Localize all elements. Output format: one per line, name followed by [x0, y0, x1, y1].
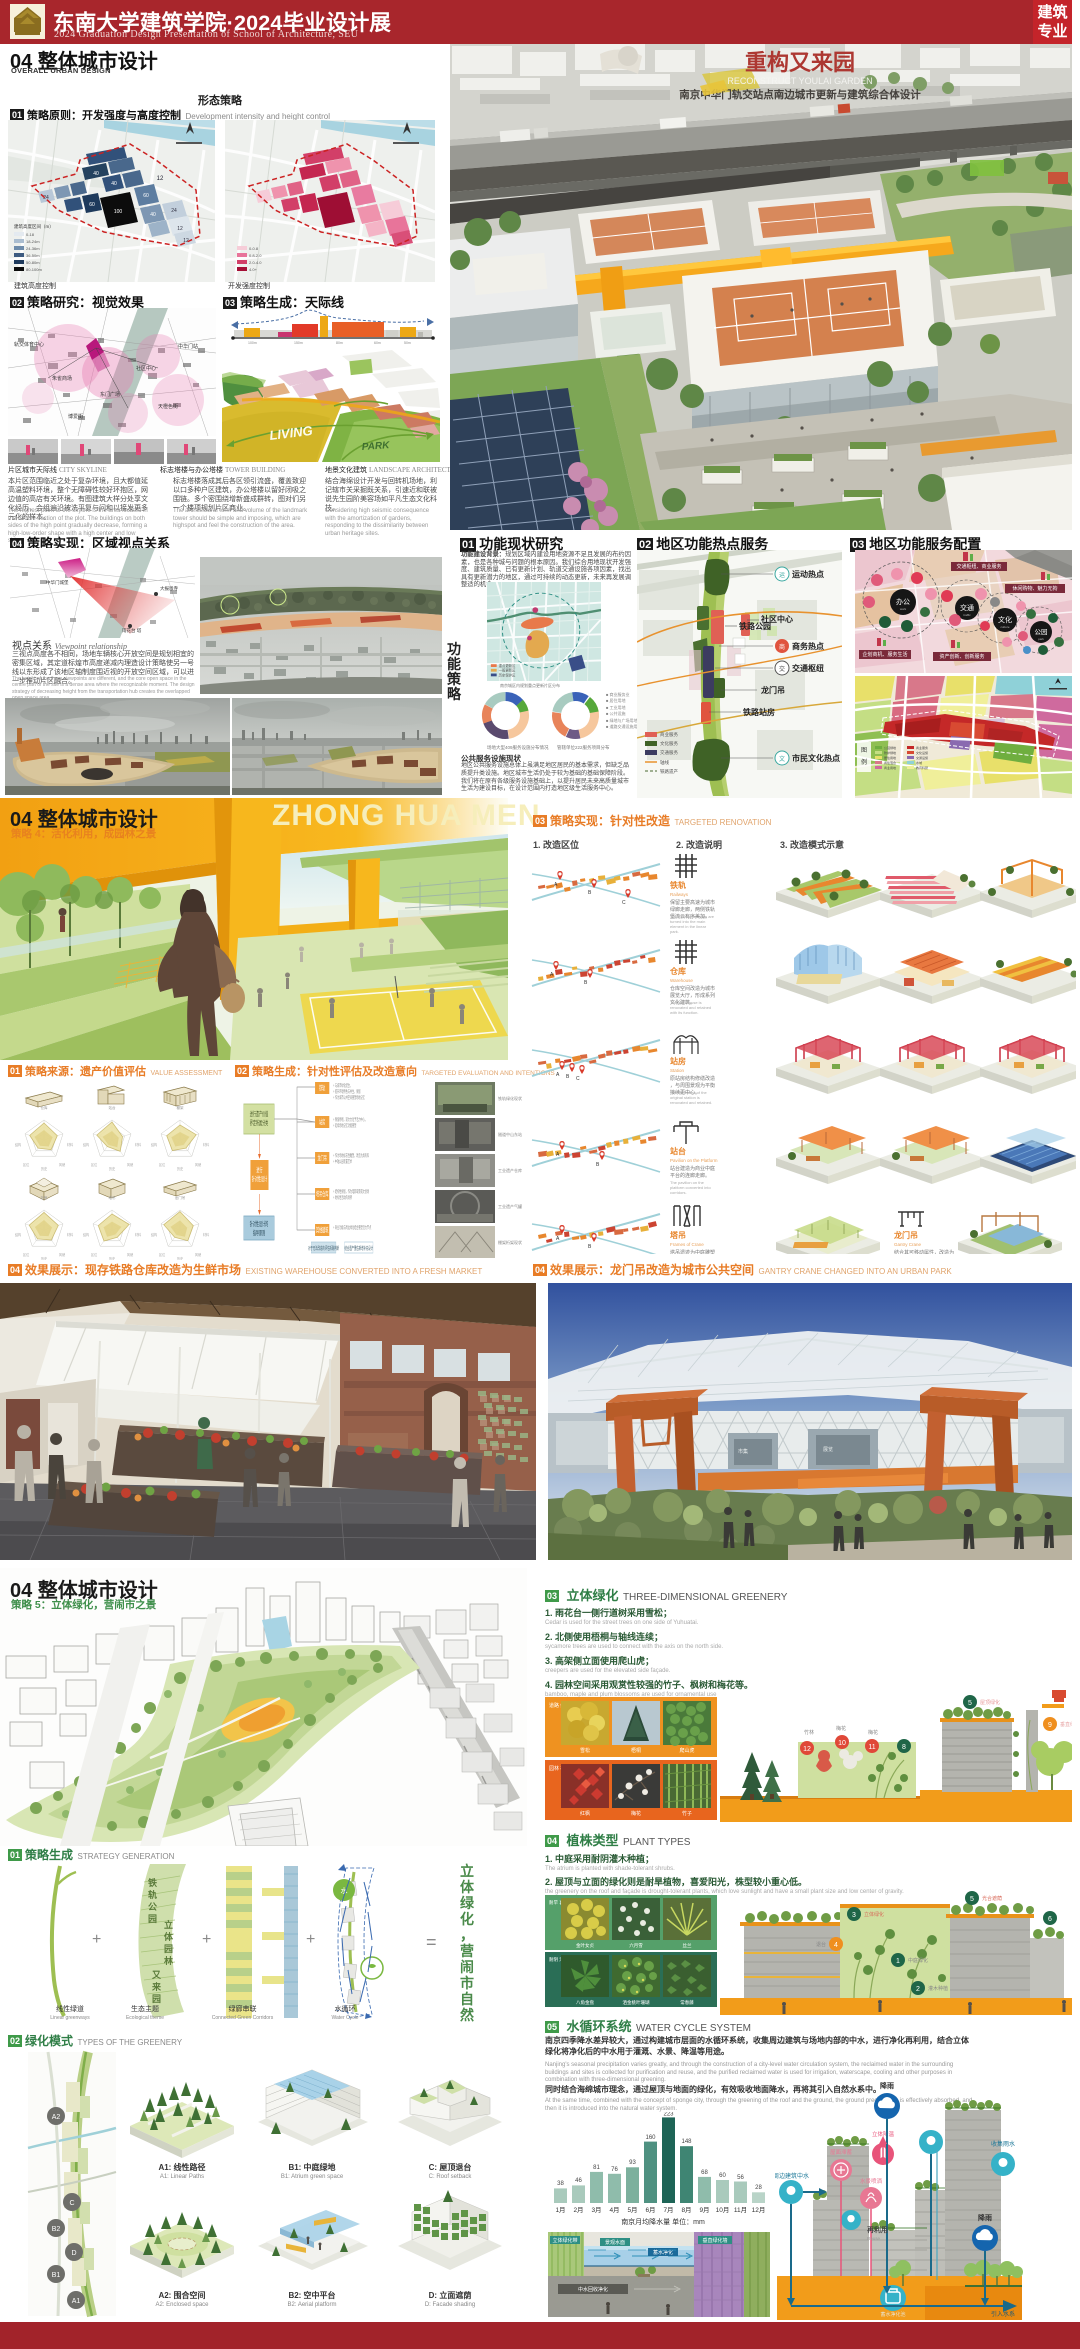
svg-text:大报恩寺: 大报恩寺 [160, 585, 178, 592]
svg-text:历史: 历史 [177, 1166, 184, 1171]
svg-text:corridors.: corridors. [670, 1190, 687, 1195]
svg-text:18-24m: 18-24m [26, 239, 40, 244]
svg-text:公: 公 [148, 1902, 157, 1912]
svg-text:梅花: 梅花 [631, 1810, 641, 1817]
svg-text:梅花: 梅花 [836, 1725, 846, 1732]
svg-text:公园: 公园 [1035, 628, 1048, 636]
svg-text:材料: 材料 [135, 1142, 142, 1147]
svg-text:A1: 线性路径: A1: 线性路径 [158, 2162, 205, 2172]
svg-text:+ 与城市绿化结合，: + 与城市绿化结合， [333, 1082, 352, 1088]
svg-text:铁轨: 铁轨 [319, 1084, 325, 1093]
svg-text:40: 40 [150, 212, 156, 218]
svg-text:水域: 水域 [916, 760, 922, 765]
svg-text:爬山虎: 爬山虎 [679, 1747, 694, 1754]
svg-text:交通枢纽、商业服务: 交通枢纽、商业服务 [956, 563, 1001, 570]
svg-text:工业遗产气罐: 工业遗产气罐 [498, 1203, 522, 1209]
svg-text:0-18: 0-18 [26, 232, 35, 237]
svg-text:交通枢纽: 交通枢纽 [792, 663, 824, 673]
svg-text:文化: 文化 [998, 615, 1012, 624]
svg-text:历史: 历史 [109, 1166, 116, 1171]
svg-text:风貌: 风貌 [59, 1252, 66, 1257]
svg-text:RECONSTRUCT YOULAI GARDEN: RECONSTRUCT YOULAI GARDEN [727, 76, 872, 86]
svg-text:市民文化热点: 市民文化热点 [792, 753, 840, 763]
svg-text:运: 运 [779, 571, 785, 579]
svg-text:2.0-4.0: 2.0-4.0 [249, 260, 262, 265]
svg-text:竹子: 竹子 [682, 1810, 692, 1817]
svg-text:教育科研: 教育科研 [916, 765, 928, 770]
svg-text:针对性设计: 针对性设计 [252, 1175, 267, 1184]
svg-text:立: 立 [460, 1863, 474, 1879]
svg-text:8月: 8月 [681, 2206, 691, 2214]
svg-text:A1: A1 [72, 2298, 81, 2305]
svg-text:60: 60 [143, 193, 149, 199]
svg-text:80-100m: 80-100m [26, 267, 42, 272]
svg-text:居住用地: 居住用地 [884, 755, 896, 760]
svg-text:灌木种植: 灌木种植 [928, 1985, 948, 1992]
svg-text:+ 中轴公园装置艺术: + 中轴公园装置艺术 [333, 1158, 352, 1164]
svg-text:平台的连廊走廊。: 平台的连廊走廊。 [670, 1172, 710, 1179]
svg-text:运动热点: 运动热点 [792, 569, 824, 579]
svg-text:图: 图 [861, 747, 867, 754]
svg-text:立: 立 [164, 1919, 173, 1930]
svg-text:B: B [584, 980, 588, 986]
svg-text:资产创新、创新服务: 资产创新、创新服务 [939, 653, 984, 660]
svg-text:223: 223 [663, 2112, 674, 2118]
svg-text:=: = [426, 1932, 437, 1952]
svg-text:B: B [588, 890, 592, 896]
svg-text:Gantry Crane: Gantry Crane [894, 1242, 922, 1247]
svg-text:垂直绿化: 垂直绿化 [1060, 1721, 1072, 1728]
svg-text:站房: 站房 [41, 1195, 48, 1200]
svg-text:社区中心: 社区中心 [136, 365, 156, 372]
svg-text:160: 160 [645, 2135, 656, 2141]
svg-text:天橙色街: 天橙色街 [158, 403, 178, 410]
svg-text:B: B [588, 1244, 592, 1250]
svg-text:风貌: 风貌 [195, 1162, 202, 1167]
svg-text:区位: 区位 [91, 1252, 98, 1257]
svg-text:轨: 轨 [148, 1889, 157, 1900]
svg-text:立体绿化带: 立体绿化带 [552, 2237, 577, 2244]
svg-text:+: + [202, 1931, 211, 1948]
svg-text:6月: 6月 [645, 2206, 655, 2214]
svg-text:屋顶绿化: 屋顶绿化 [980, 1699, 1000, 1706]
svg-text:对于无法改造的评估拆除判断: 对于无法改造的评估拆除判断 [308, 1245, 339, 1251]
svg-text:梧桐: 梧桐 [631, 1747, 641, 1754]
svg-text:结构: 结构 [151, 1142, 157, 1147]
svg-text:历史: 历史 [109, 1256, 116, 1260]
svg-text:traffic: traffic [963, 613, 971, 617]
svg-text:例: 例 [861, 758, 867, 766]
svg-text:park.: park. [670, 929, 679, 934]
svg-text:3月: 3月 [591, 2206, 601, 2214]
svg-text:建筑高度区间（m）: 建筑高度区间（m） [14, 223, 54, 230]
svg-text:结构: 结构 [15, 1142, 21, 1147]
svg-text:1: 1 [896, 1958, 900, 1965]
svg-text:梅花: 梅花 [868, 1729, 878, 1736]
svg-text:B1: Atrium green space: B1: Atrium green space [281, 2174, 344, 2180]
svg-text:5: 5 [970, 1896, 974, 1903]
svg-text:+ 保留修缮，适文文化予活力中心，: + 保留修缮，适文文化予活力中心， [333, 1116, 367, 1122]
svg-text:轨交体育中心: 轨交体育中心 [14, 341, 44, 348]
svg-text:历史保护区: 历史保护区 [499, 672, 517, 677]
svg-text:+ 作为城市公共空间重塑场地记忆: + 作为城市公共空间重塑场地记忆 [333, 1094, 365, 1100]
svg-text:体: 体 [164, 1931, 174, 1942]
svg-text:材料: 材料 [203, 1232, 210, 1237]
svg-text:工业遗产仓库: 工业遗产仓库 [498, 1167, 522, 1173]
svg-text:站台: 站台 [109, 1105, 116, 1110]
svg-text:结合其可移动属性，改造为: 结合其可移动属性，改造为 [894, 1249, 954, 1254]
svg-text:龙门吊: 龙门吊 [893, 1230, 918, 1240]
svg-text:结构: 结构 [83, 1232, 89, 1237]
svg-text:+: + [306, 1931, 315, 1948]
svg-text:轴线: 轴线 [660, 759, 669, 766]
svg-text:垂直绿化墙: 垂直绿化墙 [702, 2237, 727, 2244]
svg-text:景观水面: 景观水面 [605, 2239, 625, 2246]
svg-text:PARK: PARK [361, 440, 390, 453]
svg-text:文化服务: 文化服务 [660, 740, 678, 747]
svg-text:38: 38 [557, 2181, 564, 2187]
svg-text:历史: 历史 [41, 1256, 48, 1260]
svg-text:展览: 展览 [823, 1446, 833, 1453]
svg-text:40: 40 [93, 171, 99, 177]
svg-text:11: 11 [868, 1744, 875, 1751]
svg-text:B2: Aerial platform: B2: Aerial platform [287, 2302, 336, 2308]
svg-text:洒金桃叶珊瑚: 洒金桃叶珊瑚 [623, 1999, 650, 2006]
svg-text:塔吊仓库: 塔吊仓库 [316, 1190, 328, 1199]
svg-text:商住混合: 商住混合 [884, 760, 896, 765]
svg-text:一般更新区: 一般更新区 [499, 668, 517, 673]
svg-text:10: 10 [838, 1740, 846, 1747]
svg-text:50-80m: 50-80m [26, 260, 40, 265]
svg-text:+ 提升环境特色与共生，保留: + 提升环境特色与共生，保留 [333, 1088, 361, 1094]
svg-text:+ 结构性保留，作为电影取景或文创场: + 结构性保留，作为电影取景或文创场 [333, 1188, 369, 1194]
svg-text:区位: 区位 [23, 1252, 30, 1257]
svg-text:，: ， [460, 1927, 474, 1943]
svg-text:A1: Linear Paths: A1: Linear Paths [160, 2174, 204, 2180]
svg-text:A2: A2 [52, 2114, 61, 2121]
svg-text:风貌: 风貌 [195, 1252, 202, 1257]
svg-text:屋面滞蓄: 屋面滞蓄 [830, 2148, 853, 2156]
svg-text:商务热点: 商务热点 [792, 641, 824, 651]
svg-text:C: C [69, 2200, 74, 2207]
svg-text:朱雀商场: 朱雀商场 [52, 375, 72, 382]
svg-text:园: 园 [152, 1994, 161, 2004]
svg-text:其他建筑: 其他建筑 [316, 1226, 328, 1235]
svg-text:铁轨绿化现状: 铁轨绿化现状 [498, 1095, 522, 1101]
svg-text:针对性设计的: 针对性设计的 [250, 1220, 268, 1229]
svg-text:，与周围景观为平衡: ，与周围景观为平衡 [670, 1082, 715, 1089]
svg-text:仓库: 仓库 [669, 966, 686, 976]
svg-text:中华门站: 中华门站 [178, 343, 198, 350]
svg-text:历史: 历史 [177, 1256, 184, 1260]
svg-text:1月: 1月 [555, 2206, 565, 2214]
svg-text:9: 9 [1048, 1722, 1052, 1729]
svg-text:50m: 50m [404, 341, 411, 345]
svg-text:指导原则: 指导原则 [253, 1229, 265, 1238]
svg-text:28: 28 [755, 2185, 762, 2191]
svg-text:营: 营 [460, 1943, 474, 1959]
svg-text:收集雨水: 收集雨水 [991, 2140, 1015, 2148]
svg-text:竹林: 竹林 [804, 1729, 814, 1736]
svg-text:40: 40 [111, 181, 117, 187]
svg-text:100m: 100m [248, 341, 257, 345]
svg-text:+ 商业功能与周边绿化结合重塑活力节点: + 商业功能与周边绿化结合重塑活力节点 [333, 1224, 371, 1230]
svg-text:市集: 市集 [738, 1448, 748, 1455]
svg-text:4.0+: 4.0+ [249, 267, 258, 272]
svg-text:100: 100 [114, 209, 123, 215]
svg-text:体: 体 [460, 1879, 475, 1895]
svg-text:46: 46 [575, 2178, 582, 2184]
svg-text:B: B [566, 1074, 570, 1080]
svg-text:防护绿地: 防护绿地 [884, 750, 896, 755]
svg-text:进行: 进行 [256, 1166, 262, 1175]
svg-text:绿: 绿 [460, 1895, 475, 1911]
svg-text:结构: 结构 [15, 1232, 21, 1237]
svg-text:区位: 区位 [159, 1162, 166, 1167]
svg-text:A: A [556, 1072, 560, 1078]
svg-text:11月: 11月 [734, 2206, 747, 2214]
svg-text:雪松: 雪松 [580, 1747, 590, 1754]
svg-text:结合遗产重估新增补充设计: 结合遗产重估新增补充设计 [345, 1245, 373, 1251]
svg-text:重构又来园: 重构又来园 [745, 50, 855, 75]
svg-text:办公: 办公 [896, 597, 910, 606]
svg-text:风貌: 风貌 [59, 1162, 66, 1167]
svg-text:60: 60 [89, 202, 95, 208]
svg-text:金叶女贞: 金叶女贞 [576, 1942, 594, 1949]
svg-text:博爱街: 博爱街 [68, 413, 83, 420]
svg-text:中华门城堡: 中华门城堡 [46, 579, 69, 586]
svg-text:林: 林 [164, 1955, 174, 1966]
svg-text:C: C [622, 900, 626, 906]
svg-text:60m: 60m [374, 341, 381, 345]
svg-text:交通设施: 交通设施 [916, 755, 928, 760]
svg-text:园: 园 [148, 1914, 157, 1924]
svg-text:+ 延续场地记忆功能重塑: + 延续场地记忆功能重塑 [333, 1122, 356, 1128]
svg-text:76: 76 [611, 2167, 618, 2173]
svg-text:park: park [1038, 637, 1044, 641]
svg-text:+ 地标性活动的场所: + 地标性活动的场所 [333, 1194, 352, 1200]
svg-text:材料: 材料 [203, 1142, 210, 1147]
svg-text:然: 然 [460, 2007, 474, 2022]
svg-text:93: 93 [629, 2160, 636, 2166]
svg-text:风貌: 风貌 [127, 1162, 134, 1167]
svg-text:降雨: 降雨 [978, 2213, 992, 2222]
svg-text:Pavilion on the Platform: Pavilion on the Platform [670, 1158, 718, 1163]
svg-text:Station: Station [670, 1068, 685, 1073]
svg-text:龙门吊: 龙门吊 [318, 1154, 327, 1163]
svg-text:6: 6 [1048, 1916, 1052, 1923]
svg-text:材料: 材料 [135, 1232, 142, 1237]
svg-text:铁轨: 铁轨 [670, 880, 686, 890]
svg-text:保留主要高速为城市: 保留主要高速为城市 [670, 899, 715, 906]
svg-text:又: 又 [151, 1970, 162, 1980]
svg-text:界定所属分类: 界定所属分类 [250, 1119, 268, 1128]
svg-text:Frames of Crane: Frames of Crane [670, 1242, 704, 1247]
svg-text:结构: 结构 [151, 1232, 157, 1237]
svg-text:来: 来 [151, 1981, 162, 1992]
svg-text:D: 立面遮荫: D: 立面遮荫 [429, 2290, 472, 2300]
svg-text:进行遗产价值: 进行遗产价值 [250, 1110, 268, 1119]
svg-text:D: D [71, 2250, 76, 2257]
svg-text:仓库空间改造为城市: 仓库空间改造为城市 [670, 985, 715, 992]
svg-text:商: 商 [779, 643, 785, 651]
svg-text:5月: 5月 [627, 2206, 637, 2214]
svg-text:站台建造为商业中庭: 站台建造为商业中庭 [670, 1165, 715, 1172]
svg-text:企划商机、服务生活: 企划商机、服务生活 [862, 651, 907, 658]
svg-text:周边建筑中水: 周边建筑中水 [775, 2172, 809, 2180]
svg-text:24: 24 [171, 208, 177, 214]
svg-text:C: Roof setback: C: Roof setback [429, 2174, 473, 2180]
svg-text:A2: 围合空间: A2: 围合空间 [158, 2290, 205, 2300]
svg-text:闹: 闹 [460, 1959, 474, 1975]
svg-text:化: 化 [460, 1911, 474, 1927]
svg-text:12月: 12月 [752, 2206, 766, 2214]
svg-text:蓄水净化池: 蓄水净化池 [880, 2311, 905, 2318]
svg-text:商业服务: 商业服务 [916, 745, 928, 750]
svg-text:塔吊: 塔吊 [109, 1195, 116, 1200]
svg-text:Reuse: Reuse [867, 2236, 881, 2241]
svg-text:12: 12 [803, 1746, 811, 1753]
svg-text:仓库: 仓库 [41, 1105, 48, 1110]
svg-text:站房: 站房 [670, 1056, 686, 1066]
svg-text:B: B [596, 1162, 600, 1168]
svg-text:历史: 历史 [41, 1166, 48, 1171]
svg-text:退台: 退台 [816, 1941, 826, 1948]
svg-text:丝兰: 丝兰 [683, 1942, 692, 1948]
svg-text:150m: 150m [294, 341, 303, 345]
svg-text:再利用: 再利用 [867, 2225, 888, 2234]
svg-text:公园绿地: 公园绿地 [884, 745, 896, 750]
svg-text:culture: culture [1000, 625, 1009, 629]
svg-text:站台: 站台 [670, 1146, 686, 1156]
svg-text:D: Facade shading: D: Facade shading [425, 2302, 475, 2308]
svg-text:棚架: 棚架 [177, 1105, 184, 1110]
svg-text:重点更新区: 重点更新区 [499, 663, 517, 668]
svg-text:C: C [576, 1076, 580, 1082]
svg-text:结构: 结构 [83, 1142, 89, 1147]
svg-text:81: 81 [593, 2165, 600, 2171]
svg-text:B2: B2 [52, 2226, 61, 2233]
svg-text:隧道中山东站: 隧道中山东站 [498, 1131, 522, 1137]
svg-text:36-50m: 36-50m [26, 253, 40, 258]
svg-text:南京月均降水量 单位：mm: 南京月均降水量 单位：mm [621, 2217, 705, 2226]
svg-text:with its function.: with its function. [670, 1010, 698, 1015]
svg-text:六月雪: 六月雪 [629, 1942, 643, 1949]
svg-text:56: 56 [737, 2175, 744, 2181]
svg-text:Warehouse: Warehouse [670, 978, 693, 983]
svg-text:光合遮荫: 光合遮荫 [982, 1895, 1002, 1902]
svg-text:龙门吊: 龙门吊 [175, 1195, 186, 1200]
svg-text:原站房结构修缮改造: 原站房结构修缮改造 [670, 1075, 715, 1082]
svg-text:休闲购物、魅力无拘: 休闲购物、魅力无拘 [1012, 585, 1057, 592]
svg-text:自: 自 [460, 1991, 474, 2007]
svg-text:C: 屋顶退台: C: 屋顶退台 [429, 2162, 472, 2172]
svg-text:商业服务: 商业服务 [660, 731, 678, 738]
svg-text:中庭绿化: 中庭绿化 [908, 1957, 928, 1964]
svg-text:绿廊走廊，两侧铁轨: 绿廊走廊，两侧铁轨 [670, 906, 715, 913]
svg-text:区位: 区位 [91, 1162, 98, 1167]
svg-text:园: 园 [164, 1944, 173, 1954]
svg-text:社区中心: 社区中心 [760, 614, 793, 624]
svg-text:2月: 2月 [573, 2206, 583, 2214]
svg-text:降雨: 降雨 [880, 2081, 894, 2090]
svg-text:引入水系: 引入水系 [991, 2310, 1015, 2318]
svg-text:材料: 材料 [67, 1142, 74, 1147]
svg-text:八角金盘: 八角金盘 [576, 1999, 594, 2006]
svg-text:区位: 区位 [23, 1162, 30, 1167]
svg-text:铁: 铁 [148, 1877, 157, 1888]
svg-text:立体绿化: 立体绿化 [864, 1911, 884, 1918]
svg-text:商业用地: 商业用地 [884, 765, 896, 770]
svg-text:站房: 站房 [319, 1118, 325, 1127]
svg-text:B1: 中庭绿地: B1: 中庭绿地 [288, 2162, 335, 2172]
svg-text:Railways: Railways [670, 892, 689, 897]
svg-text:work: work [900, 607, 907, 611]
svg-text:市: 市 [460, 1975, 474, 1991]
svg-text:展览大厅，形成系列: 展览大厅，形成系列 [670, 992, 715, 999]
svg-text:12: 12 [177, 226, 183, 232]
svg-text:148: 148 [681, 2139, 692, 2145]
svg-text:12: 12 [157, 176, 164, 182]
svg-text:9月: 9月 [699, 2206, 709, 2214]
svg-text:风貌: 风貌 [127, 1252, 134, 1257]
svg-text:区位: 区位 [159, 1252, 166, 1257]
svg-text:中水回收净化: 中水回收净化 [578, 2286, 608, 2293]
svg-text:8: 8 [902, 1744, 906, 1751]
svg-text:renovated and retained.: renovated and retained. [670, 1100, 712, 1105]
svg-text:60: 60 [719, 2173, 726, 2179]
svg-text:塔吊: 塔吊 [670, 1230, 686, 1240]
svg-text:交通服务: 交通服务 [660, 749, 678, 756]
svg-text:红枫: 红枫 [580, 1810, 590, 1817]
svg-text:7月: 7月 [663, 2206, 673, 2214]
svg-text:文化设施: 文化设施 [916, 750, 928, 755]
svg-text:B2: 空中平台: B2: 空中平台 [288, 2290, 335, 2300]
svg-text:水景喷洒: 水景喷洒 [860, 2177, 883, 2185]
svg-text:龙门吊: 龙门吊 [760, 685, 785, 695]
svg-text:棚架桁架现状: 棚架桁架现状 [498, 1239, 522, 1245]
svg-text:A2: Enclosed space: A2: Enclosed space [155, 2302, 209, 2308]
svg-text:文: 文 [779, 755, 785, 763]
svg-text:2: 2 [916, 1986, 920, 1993]
svg-text:交通: 交通 [960, 603, 974, 612]
svg-text:铁路站房: 铁路站房 [743, 707, 775, 717]
svg-text:10月: 10月 [716, 2206, 730, 2214]
svg-text:交: 交 [779, 665, 785, 673]
svg-text:+: + [92, 1931, 101, 1948]
svg-text:雨花台 塔: 雨花台 塔 [122, 627, 142, 634]
svg-text:0-0.8: 0-0.8 [249, 246, 259, 251]
svg-text:68: 68 [701, 2170, 708, 2176]
svg-text:B1: B1 [52, 2272, 61, 2279]
svg-text:24-36m: 24-36m [26, 246, 40, 251]
svg-text:材料: 材料 [67, 1232, 74, 1237]
svg-text:0.8-2.0: 0.8-2.0 [249, 253, 262, 258]
svg-text:80m: 80m [336, 341, 343, 345]
svg-text:铁路遗产: 铁路遗产 [660, 768, 678, 775]
svg-text:常春藤: 常春藤 [680, 1999, 694, 2006]
svg-text:3: 3 [852, 1912, 856, 1919]
svg-text:4: 4 [834, 1942, 838, 1949]
svg-text:4月: 4月 [609, 2206, 619, 2214]
svg-text:塔吊遗迹为中庭雕塑: 塔吊遗迹为中庭雕塑 [670, 1249, 715, 1254]
svg-text:东门广场: 东门广场 [100, 391, 120, 398]
svg-text:5: 5 [968, 1700, 972, 1707]
svg-text:+ 作为场地标志性雕塑，改造为具有科: + 作为场地标志性雕塑，改造为具有科 [333, 1152, 369, 1158]
